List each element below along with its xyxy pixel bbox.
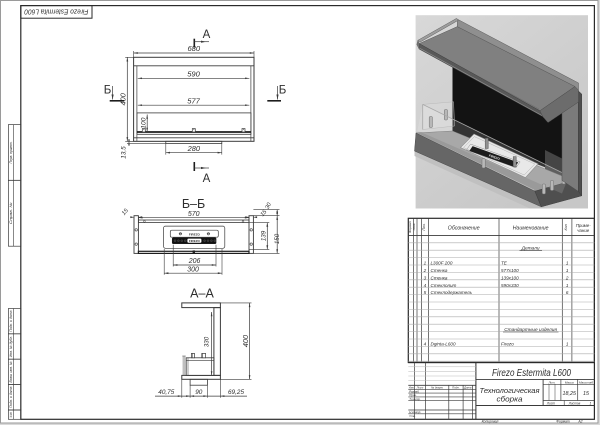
svg-text:590: 590 — [187, 70, 200, 79]
svg-text:5: 5 — [424, 290, 427, 295]
svg-text:1: 1 — [566, 342, 569, 347]
svg-text:15: 15 — [583, 391, 590, 397]
svg-text:Масса: Масса — [565, 380, 574, 384]
svg-text:150: 150 — [274, 233, 281, 244]
svg-text:Стенка: Стенка — [431, 275, 448, 280]
svg-text:206: 206 — [188, 258, 201, 265]
svg-text:330: 330 — [204, 336, 211, 347]
svg-text:Лит.: Лит. — [547, 380, 555, 384]
svg-text:Подп. и дата: Подп. и дата — [9, 310, 13, 331]
svg-text:Зона: Зона — [412, 223, 416, 230]
svg-text:Стеклодержатель: Стеклодержатель — [431, 290, 473, 295]
svg-text:Поз.: Поз. — [422, 223, 426, 230]
svg-text:FIREZO: FIREZO — [189, 239, 201, 243]
svg-text:Взам. инв. №: Взам. инв. № — [9, 361, 13, 383]
svg-text:1: 1 — [566, 261, 569, 266]
svg-text:300: 300 — [187, 266, 199, 273]
svg-text:40,75: 40,75 — [158, 389, 174, 396]
svg-text:570: 570 — [188, 211, 200, 218]
svg-text:Firezo Estermita L600: Firezo Estermita L600 — [24, 8, 89, 17]
svg-text:Б–Б: Б–Б — [182, 197, 205, 211]
svg-text:Утв.: Утв. — [409, 414, 416, 418]
svg-text:Лист: Лист — [546, 402, 556, 406]
svg-text:А: А — [203, 173, 211, 185]
svg-text:577: 577 — [187, 96, 200, 105]
svg-text:FIREZO: FIREZO — [189, 233, 201, 237]
svg-text:2: 2 — [565, 275, 569, 280]
svg-text:2: 2 — [423, 268, 427, 273]
svg-text:Б: Б — [104, 84, 112, 96]
svg-text:Dginta-L600: Dginta-L600 — [431, 342, 456, 347]
svg-text:3: 3 — [424, 275, 427, 280]
svg-text:590х330: 590х330 — [501, 283, 519, 288]
svg-text:139х100: 139х100 — [501, 275, 519, 280]
svg-text:Инв. № подл.: Инв. № подл. — [9, 412, 13, 417]
svg-text:Кол.: Кол. — [564, 223, 568, 230]
svg-text:1: 1 — [566, 283, 569, 288]
svg-text:Б: Б — [279, 84, 287, 96]
svg-text:90: 90 — [195, 389, 203, 396]
svg-text:280: 280 — [187, 144, 201, 153]
svg-text:Стеклолит: Стеклолит — [431, 283, 457, 288]
svg-text:Наименование: Наименование — [513, 226, 549, 232]
svg-text:1: 1 — [424, 261, 427, 266]
svg-text:Формат: Формат — [408, 221, 412, 233]
svg-text:100: 100 — [141, 117, 148, 129]
svg-text:Firezo: Firezo — [501, 342, 514, 347]
svg-text:№ докум.: № докум. — [431, 386, 444, 390]
svg-text:Дата: Дата — [463, 386, 472, 390]
svg-text:Т.контр.: Т.контр. — [409, 397, 421, 401]
svg-text:Копировал: Копировал — [482, 420, 499, 424]
svg-text:1: 1 — [566, 268, 569, 273]
svg-text:Firezo Estermita L600: Firezo Estermita L600 — [492, 368, 571, 379]
svg-text:Инв. № дубл.: Инв. № дубл. — [9, 336, 13, 357]
svg-text:4: 4 — [424, 283, 427, 288]
svg-text:чание: чание — [577, 228, 590, 233]
svg-text:Листов: Листов — [568, 402, 581, 406]
svg-text:А2: А2 — [577, 420, 582, 424]
svg-text:ТЕ: ТЕ — [501, 261, 508, 266]
svg-text:400: 400 — [241, 334, 250, 347]
svg-text:4: 4 — [424, 342, 427, 347]
svg-text:577х100: 577х100 — [501, 268, 519, 273]
svg-text:13,5: 13,5 — [120, 146, 127, 159]
svg-text:139: 139 — [261, 230, 268, 241]
svg-text:Формат: Формат — [556, 420, 570, 424]
svg-text:Подп. и дата: Подп. и дата — [9, 386, 13, 408]
svg-text:6: 6 — [566, 290, 569, 295]
svg-text:Обозначение: Обозначение — [448, 226, 480, 232]
svg-text:Масштаб: Масштаб — [579, 380, 593, 384]
svg-text:Справ. №: Справ. № — [9, 202, 13, 224]
svg-text:18,25: 18,25 — [563, 391, 577, 397]
svg-text:сборка: сборка — [497, 395, 523, 404]
svg-text:Подп.: Подп. — [452, 386, 460, 390]
svg-text:А–А: А–А — [190, 287, 214, 301]
svg-text:69,25: 69,25 — [228, 389, 244, 396]
svg-text:А: А — [203, 29, 211, 41]
svg-text:1: 1 — [590, 402, 592, 406]
svg-text:L300F 200: L300F 200 — [431, 261, 453, 266]
svg-text:Технологическая: Технологическая — [480, 386, 540, 395]
svg-text:400: 400 — [119, 92, 128, 105]
svg-text:Перв. примен.: Перв. примен. — [9, 141, 13, 163]
svg-text:Стенка: Стенка — [431, 268, 448, 273]
